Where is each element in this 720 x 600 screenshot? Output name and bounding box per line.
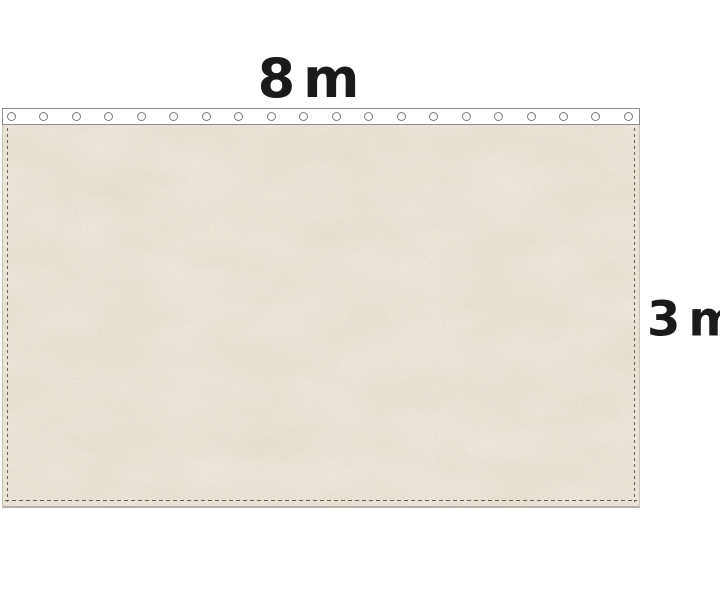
- eyelet-icon: [234, 112, 243, 121]
- stitch-line-bottom: [5, 500, 637, 501]
- eyelet-icon: [202, 112, 211, 121]
- eyelet-icon: [104, 112, 113, 121]
- tarp-panel: [2, 108, 640, 508]
- eyelet-icon: [591, 112, 600, 121]
- eyelet-icon: [527, 112, 536, 121]
- product-dimension-diagram: 8m: [0, 0, 720, 600]
- stitch-line-right: [634, 128, 635, 502]
- eyelet-icon: [429, 112, 438, 121]
- eyelet-icon: [7, 112, 16, 121]
- width-dimension-label: 8m: [258, 52, 359, 106]
- eyelet-icon: [624, 112, 633, 121]
- eyelet-icon: [462, 112, 471, 121]
- width-unit: m: [303, 47, 358, 110]
- eyelet-icon: [559, 112, 568, 121]
- fabric-texture: [3, 125, 639, 506]
- eyelet-icon: [169, 112, 178, 121]
- eyelet-band: [2, 108, 640, 125]
- eyelet-icon: [397, 112, 406, 121]
- eyelet-icon: [39, 112, 48, 121]
- height-value: 3: [647, 292, 679, 348]
- eyelet-icon: [299, 112, 308, 121]
- eyelet-icon: [494, 112, 503, 121]
- height-dimension-label: 3m: [647, 296, 720, 344]
- eyelet-icon: [364, 112, 373, 121]
- fabric-body: [2, 125, 640, 508]
- eyelet-icon: [137, 112, 146, 121]
- eyelet-icon: [72, 112, 81, 121]
- height-unit: m: [688, 292, 720, 348]
- stitch-line-left: [7, 128, 8, 502]
- eyelet-icon: [267, 112, 276, 121]
- width-value: 8: [258, 47, 295, 110]
- eyelet-icon: [332, 112, 341, 121]
